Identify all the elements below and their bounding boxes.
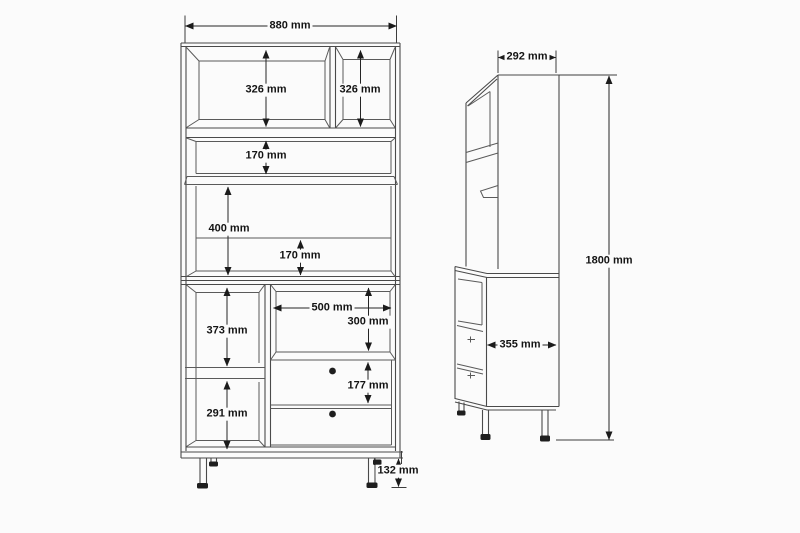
front-leg-foot [367, 483, 378, 489]
dim-label-open-section-height: 400 mm [207, 223, 252, 236]
side-back-leg-foot [457, 411, 466, 416]
dim-label-top-left-height: 326 mm [244, 84, 289, 97]
dim-label-middle-shelf-height: 170 mm [244, 150, 289, 163]
dim-label-lower-left-lower: 291 mm [205, 408, 250, 421]
side-structure-lines [455, 75, 559, 410]
dim-label-upper-depth: 292 mm [505, 51, 550, 64]
technical-drawing-canvas: 880 mm 326 mm 326 mm 170 mm 400 mm 170 m… [0, 0, 800, 533]
drawer-knob-bottom [329, 411, 336, 418]
cabinet-line-drawing [0, 0, 800, 533]
side-legs [457, 402, 550, 442]
front-view-drawing [181, 43, 403, 489]
dim-label-overall-height: 1800 mm [583, 255, 634, 268]
front-legs [197, 458, 382, 489]
front-leg-foot [197, 483, 208, 489]
dim-label-open-lower-height: 170 mm [278, 250, 323, 263]
dim-label-top-right-height: 326 mm [338, 84, 383, 97]
side-view-drawing [455, 75, 559, 442]
dim-label-leg-height: 132 mm [376, 465, 421, 478]
front-leg-lines [200, 458, 375, 483]
side-right-leg-foot [540, 436, 550, 442]
side-interior-lines [457, 92, 498, 379]
dim-label-niche-height: 300 mm [346, 316, 391, 329]
dim-label-lower-left-upper: 373 mm [205, 325, 250, 338]
side-front-leg-foot [481, 434, 491, 440]
dim-label-overall-width: 880 mm [268, 20, 313, 33]
dim-label-niche-width: 500 mm [310, 302, 355, 315]
dim-label-drawer-height: 177 mm [346, 380, 391, 393]
back-leg-foot [209, 462, 218, 467]
dim-label-lower-depth: 355 mm [498, 339, 543, 352]
drawer-knob-top [329, 368, 336, 375]
